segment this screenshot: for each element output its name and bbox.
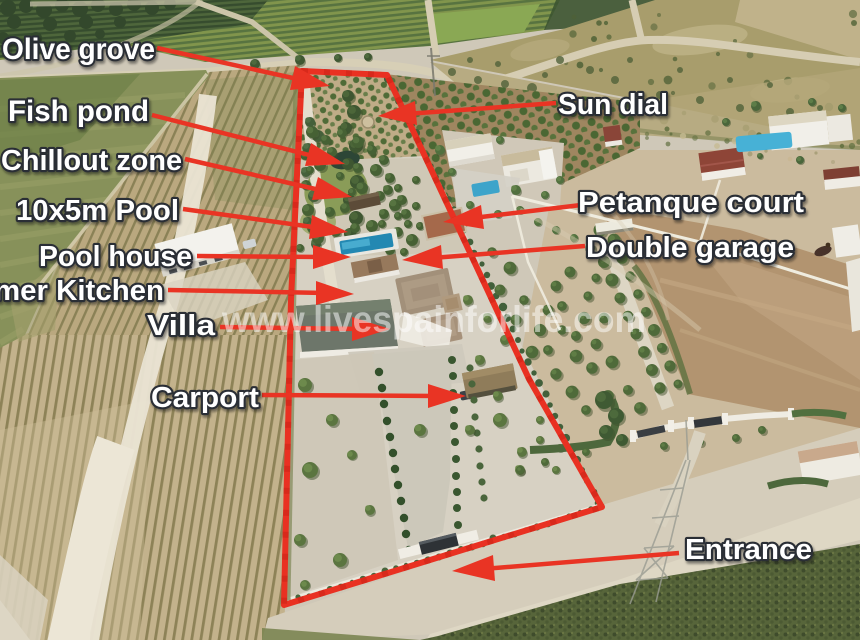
svg-text:Petanque court: Petanque court <box>578 187 804 219</box>
svg-text:Fish pond: Fish pond <box>8 95 149 128</box>
svg-text:Double garage: Double garage <box>586 232 794 264</box>
svg-text:www.livespainforlife.com: www.livespainforlife.com <box>221 299 646 340</box>
svg-text:Entrance: Entrance <box>685 534 812 566</box>
svg-text:Chillout zone: Chillout zone <box>1 145 182 177</box>
svg-text:Carport: Carport <box>151 382 259 414</box>
svg-text:Pool house: Pool house <box>39 241 192 273</box>
svg-text:Olive grove: Olive grove <box>2 33 155 66</box>
svg-text:Sun dial: Sun dial <box>558 89 668 121</box>
svg-text:mer Kitchen: mer Kitchen <box>0 275 164 307</box>
svg-text:10x5m Pool: 10x5m Pool <box>16 195 179 227</box>
svg-text:Villa: Villa <box>147 310 216 342</box>
